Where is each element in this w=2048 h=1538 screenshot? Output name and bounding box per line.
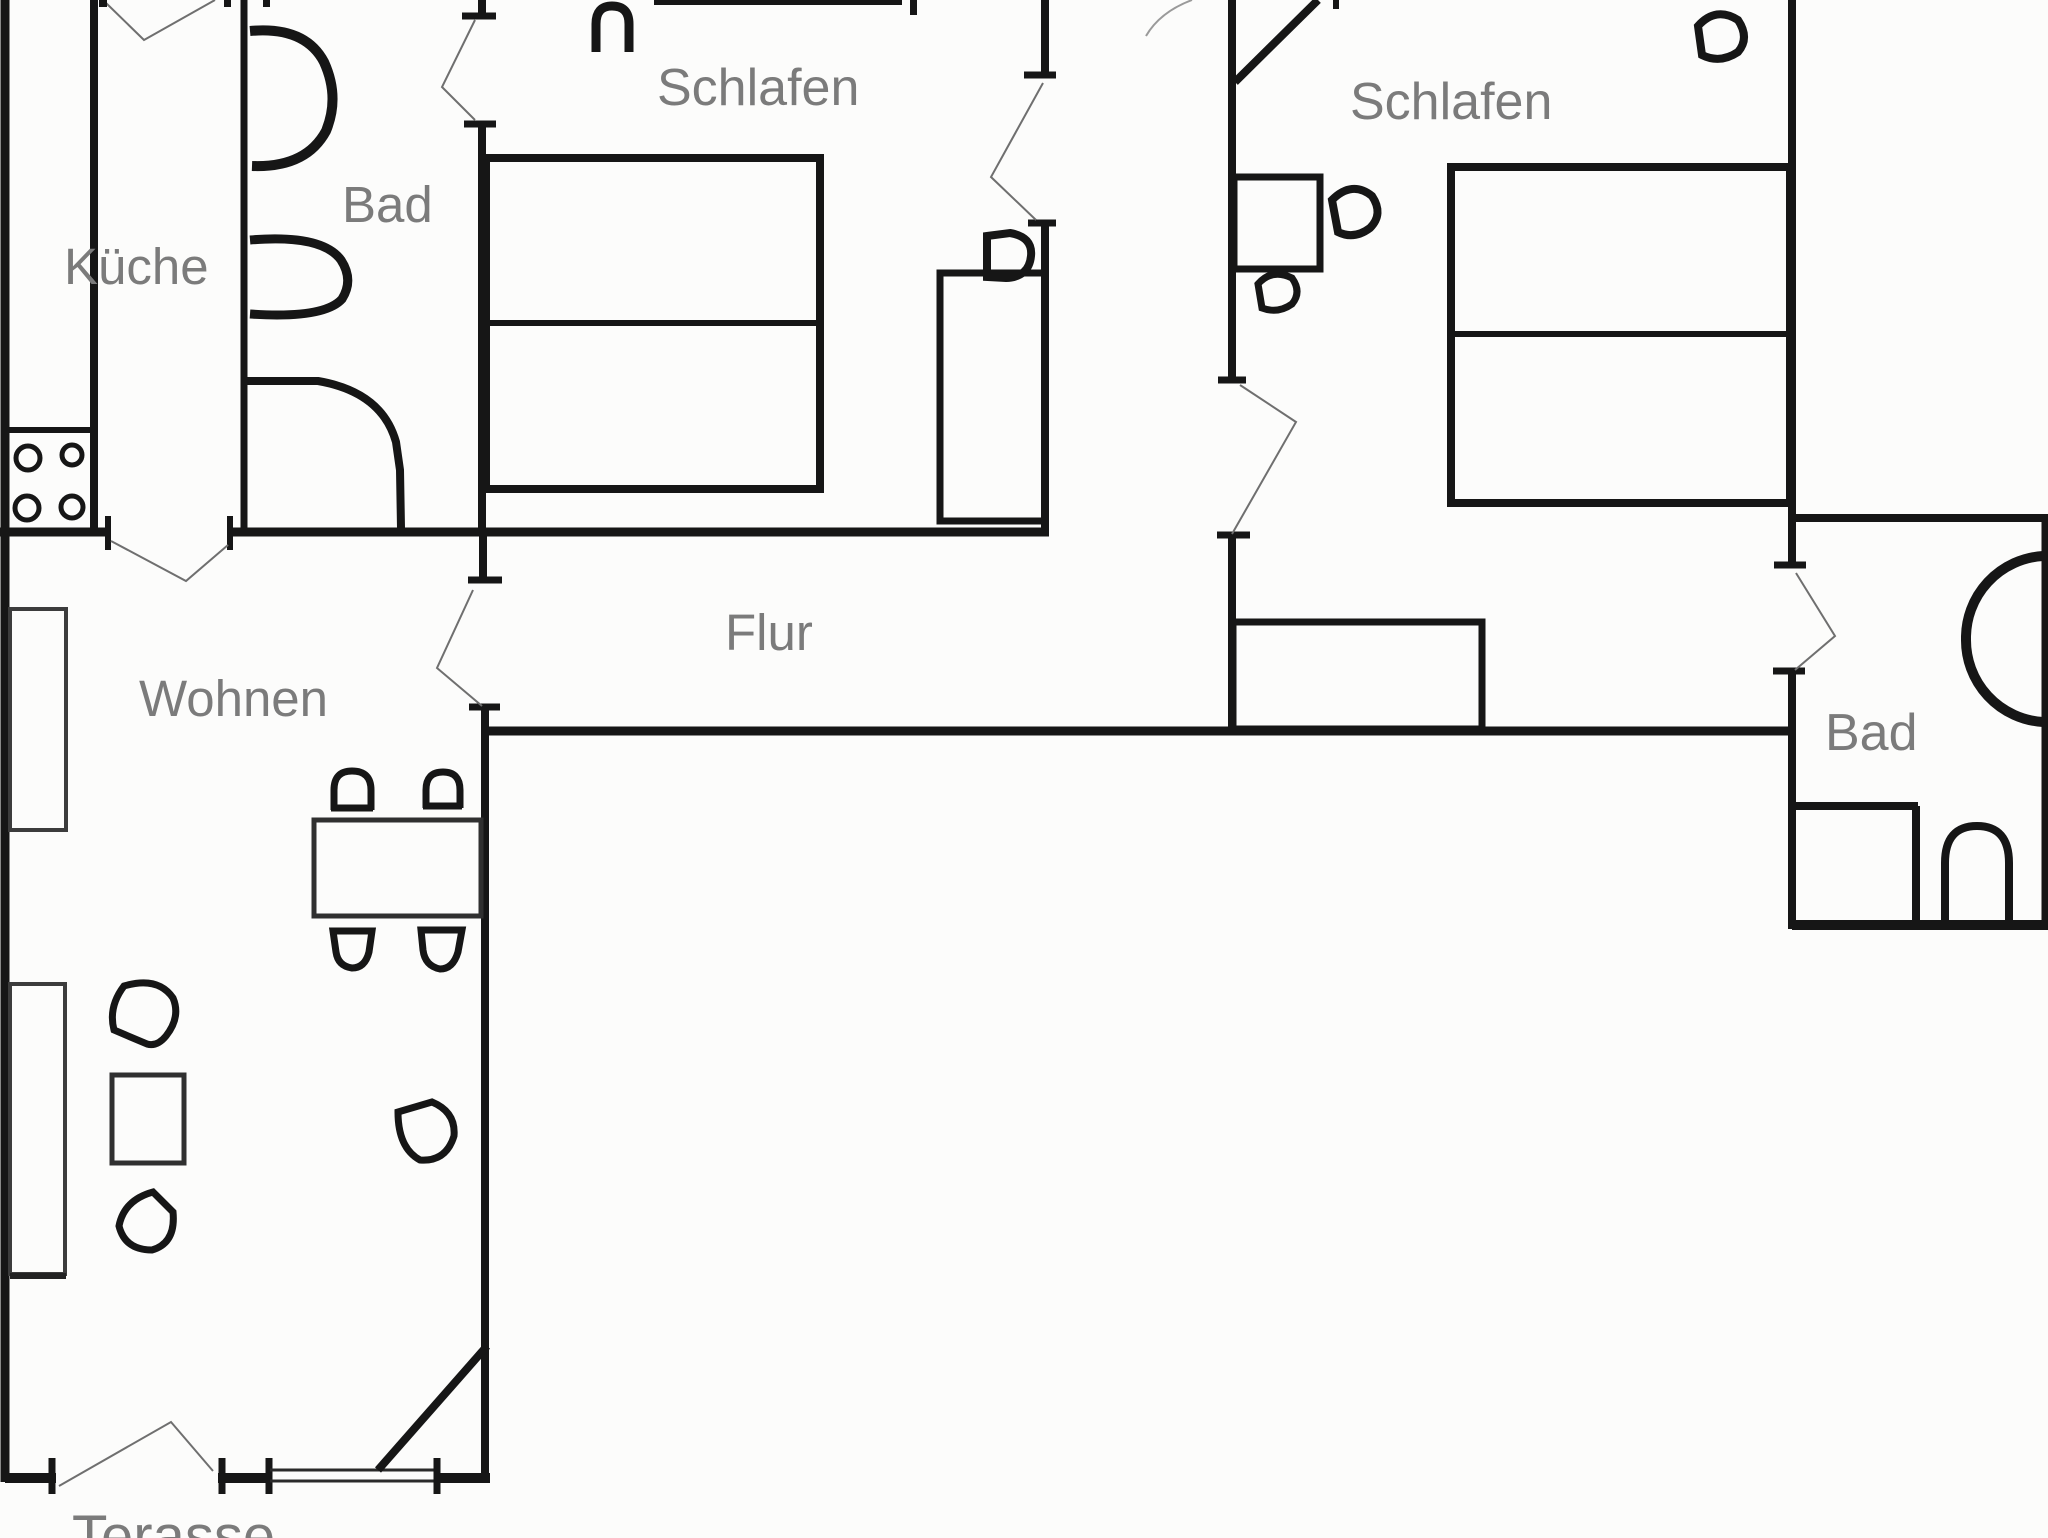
svg-text:Flur: Flur <box>725 604 813 661</box>
svg-text:Wohnen: Wohnen <box>139 670 328 727</box>
svg-text:Schlafen: Schlafen <box>657 59 859 117</box>
svg-text:Küche: Küche <box>64 238 209 295</box>
svg-text:Bad: Bad <box>1825 704 1918 762</box>
svg-text:Schlafen: Schlafen <box>1350 73 1552 131</box>
svg-text:Terasse: Terasse <box>72 1504 275 1538</box>
svg-text:Bad: Bad <box>342 176 433 233</box>
